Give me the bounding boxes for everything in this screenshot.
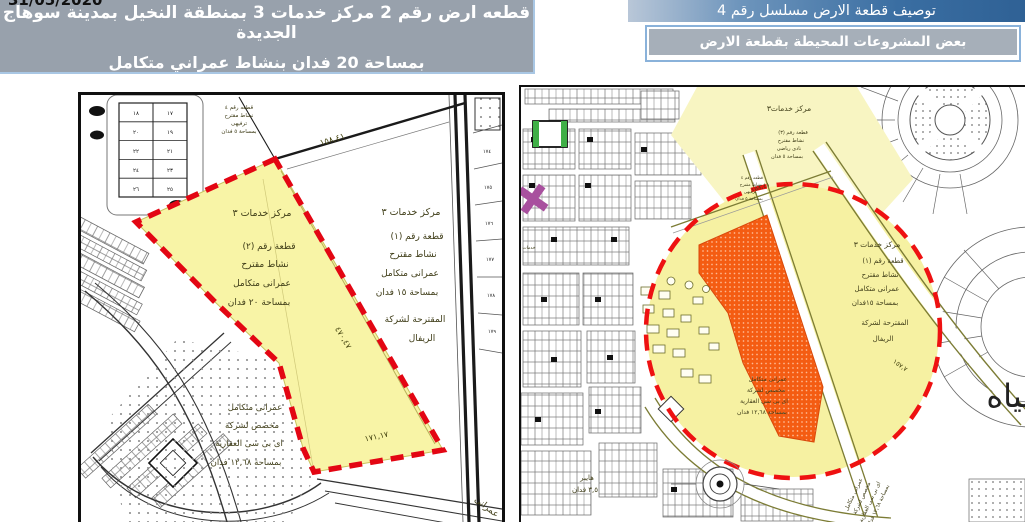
svg-text:نشاط مقترح: نشاط مقترح: [389, 250, 436, 260]
svg-text:قطعه رقم ٤: قطعه رقم ٤: [225, 105, 254, 111]
svg-text:نشاط مقترح: نشاط مقترح: [241, 260, 288, 270]
svg-text:٢٢: ٢٢: [133, 149, 139, 155]
svg-text:اى بى سى العقارية: اى بى سى العقارية: [740, 398, 788, 405]
svg-text:٢٥: ٢٥: [167, 187, 173, 193]
svg-text:٣,٥ فدان: ٣,٥ فدان: [572, 486, 598, 494]
svg-text:٢٦: ٢٦: [133, 187, 139, 193]
svg-text:٢١: ٢١: [167, 149, 173, 155]
svg-text:١٨: ١٨: [133, 111, 139, 117]
svg-text:بمساحة ٢٠ فدان: بمساحة ٢٠ فدان: [228, 298, 290, 308]
svg-text:عمرانى متكامل: عمرانى متكامل: [749, 376, 788, 383]
svg-text:المقترحة لشركة: المقترحة لشركة: [861, 319, 908, 327]
svg-text:اى بى سى العقارية: اى بى سى العقارية: [215, 439, 283, 449]
svg-text:عمرانى متكامل: عمرانى متكامل: [228, 403, 283, 413]
svg-text:المقترحة لشركة: المقترحة لشركة: [385, 315, 446, 325]
svg-text:١٧٦: ١٧٦: [485, 221, 493, 227]
detail-site-plan-map: قطعه رقم ٤ نشاط مقترح ترفيهى بمساحة ٥ فد…: [78, 92, 505, 522]
svg-text:مخصص لشركة: مخصص لشركة: [747, 387, 785, 394]
plot1-label: قطعة رقم (١) نشاط مقترح عمرانى متكامل بم…: [376, 232, 446, 344]
svg-text:١٩: ١٩: [167, 130, 173, 136]
adjacent-area-title: مركز خدمات ٣: [381, 207, 440, 218]
svg-text:نادى رياضى: نادى رياضى: [777, 146, 801, 152]
svg-text:الريفال: الريفال: [873, 335, 894, 343]
svg-text:بمساحة ٥ فدان: بمساحة ٥ فدان: [735, 197, 763, 202]
left-header-line1: قطعه ارض رقم 2 مركز خدمات 3 بمنطقة النخي…: [0, 3, 533, 43]
svg-text:قطعة رقم (٢): قطعة رقم (٢): [242, 242, 295, 252]
road-parcel-numbers: ١٧٤ ١٧٥ ١٧٦ ١٧٧ ١٧٨ ١٧٩: [483, 149, 496, 335]
left-header-box: قطعه ارض رقم 2 مركز خدمات 3 بمنطقة النخي…: [0, 0, 535, 74]
left-header-line2: بمساحة 20 فدان بنشاط عمراني متكامل: [0, 53, 533, 72]
svg-text:عمرانى متكامل: عمرانى متكامل: [855, 285, 900, 293]
svg-text:بمساحة ١٢,٦٨ فدان: بمساحة ١٢,٦٨ فدان: [211, 458, 282, 468]
plot1-title: مركز خدمات ٣: [854, 240, 901, 249]
right-header-title-bar: توصيف قطعة الارض مسلسل رقم 4: [628, 0, 1025, 22]
right-header-subtitle: بعض المشروعات المحيطة بقطعة الارض: [649, 29, 1017, 55]
svg-text:نشاط مقترح: نشاط مقترح: [778, 138, 804, 144]
svg-text:ترفيهى: ترفيهى: [231, 121, 247, 127]
district-label: خدمات: [522, 246, 535, 251]
svg-text:هايبر: هايبر: [579, 474, 594, 482]
dimension-158-41: ١٥٨,٤١: [319, 132, 346, 149]
svg-text:بمساحة ١٢,٦٨ فدان: بمساحة ١٢,٦٨ فدان: [737, 409, 787, 416]
svg-text:نشاط مقترح: نشاط مقترح: [862, 271, 899, 279]
svg-text:مخصص لشركة: مخصص لشركة: [225, 421, 279, 431]
svg-text:١٧٤: ١٧٤: [483, 149, 491, 155]
svg-text:١٧٥: ١٧٥: [484, 185, 492, 191]
svg-text:١٧: ١٧: [167, 111, 173, 117]
svg-text:بمساحة ٥ فدان: بمساحة ٥ فدان: [771, 154, 803, 160]
plot-area-title: مركز خدمات ٣: [232, 208, 291, 219]
school-building: [533, 121, 567, 147]
svg-text:قطعة رقم (٣): قطعة رقم (٣): [778, 130, 808, 136]
svg-text:بمساحة ٥ فدان: بمساحة ٥ فدان: [221, 129, 257, 135]
svg-text:١٧٩: ١٧٩: [488, 329, 496, 335]
svg-text:نشاط مقترح: نشاط مقترح: [225, 113, 254, 119]
context-overview-map: خدمات: [519, 85, 1025, 522]
svg-text:الريفال: الريفال: [409, 334, 436, 344]
water-label: مياه: [986, 377, 1025, 415]
svg-text:عمرانى متكامل: عمرانى متكامل: [381, 269, 439, 279]
svg-text:٢٤: ٢٤: [133, 168, 139, 174]
svg-text:١٧٨: ١٧٨: [487, 293, 495, 299]
svg-text:١٧٧: ١٧٧: [486, 257, 494, 263]
svg-text:قطعه رقم ٤: قطعه رقم ٤: [741, 176, 763, 181]
svg-text:٢٣: ٢٣: [167, 168, 173, 174]
slide-date: 31/05/2020: [8, 0, 102, 9]
slide: 31/05/2020 قطعه ارض رقم 2 مركز خدمات 3 ب…: [0, 0, 1025, 522]
center-title: مركز خدمات٣: [767, 104, 811, 113]
svg-text:قطعة رقم (١): قطعة رقم (١): [862, 257, 903, 265]
svg-text:عمرانى متكامل: عمرانى متكامل: [233, 279, 291, 289]
svg-text:بمساحة ١٥فدان: بمساحة ١٥فدان: [852, 299, 898, 307]
right-header-subtitle-box: بعض المشروعات المحيطة بقطعة الارض: [645, 25, 1021, 62]
svg-text:٢٠: ٢٠: [133, 130, 139, 136]
svg-text:بمساحة ١٥ فدان: بمساحة ١٥ فدان: [376, 288, 438, 298]
svg-text:قطعة رقم (١): قطعة رقم (١): [390, 232, 443, 242]
